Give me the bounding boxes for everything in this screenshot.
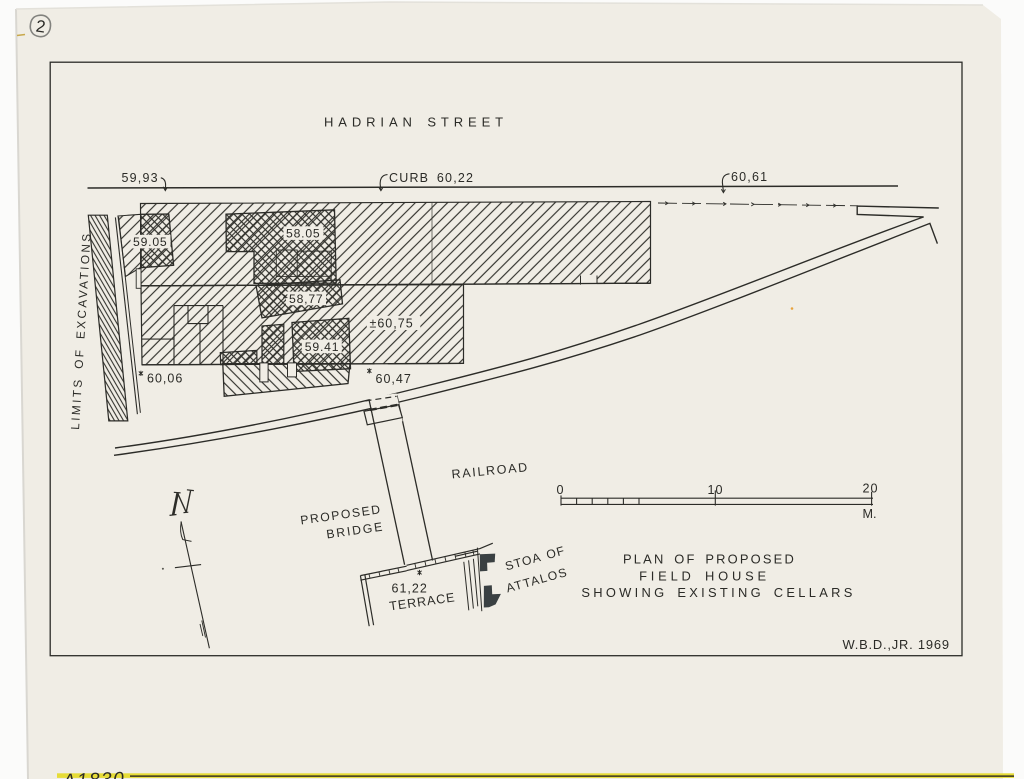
svg-text:SHOWING EXISTING CELLARS: SHOWING EXISTING CELLARS: [581, 585, 855, 600]
svg-text:A1830: A1830: [61, 769, 125, 779]
svg-text:60,61: 60,61: [731, 170, 768, 184]
svg-text:58,77: 58,77: [289, 292, 324, 306]
svg-text:59.41: 59.41: [305, 340, 340, 354]
svg-text:61,22: 61,22: [392, 581, 428, 595]
svg-text:60,06: 60,06: [147, 372, 183, 386]
svg-text:20: 20: [863, 482, 879, 496]
svg-text:FIELD HOUSE: FIELD HOUSE: [639, 568, 770, 583]
svg-text:M.: M.: [863, 507, 877, 521]
svg-text:60,47: 60,47: [376, 372, 412, 386]
svg-text:10: 10: [708, 483, 724, 497]
svg-text:58.05: 58.05: [286, 227, 321, 241]
svg-text:PLAN OF PROPOSED: PLAN OF PROPOSED: [623, 551, 796, 566]
svg-text:0: 0: [557, 483, 564, 497]
svg-text:HADRIAN STREET: HADRIAN STREET: [324, 115, 508, 130]
svg-text:59.05: 59.05: [133, 235, 168, 249]
svg-text:59,93: 59,93: [122, 171, 159, 185]
svg-text:W.B.D.,JR. 1969: W.B.D.,JR. 1969: [843, 637, 950, 652]
svg-text:±60,75: ±60,75: [370, 317, 414, 331]
svg-text:CURB 60,22: CURB 60,22: [389, 171, 474, 185]
